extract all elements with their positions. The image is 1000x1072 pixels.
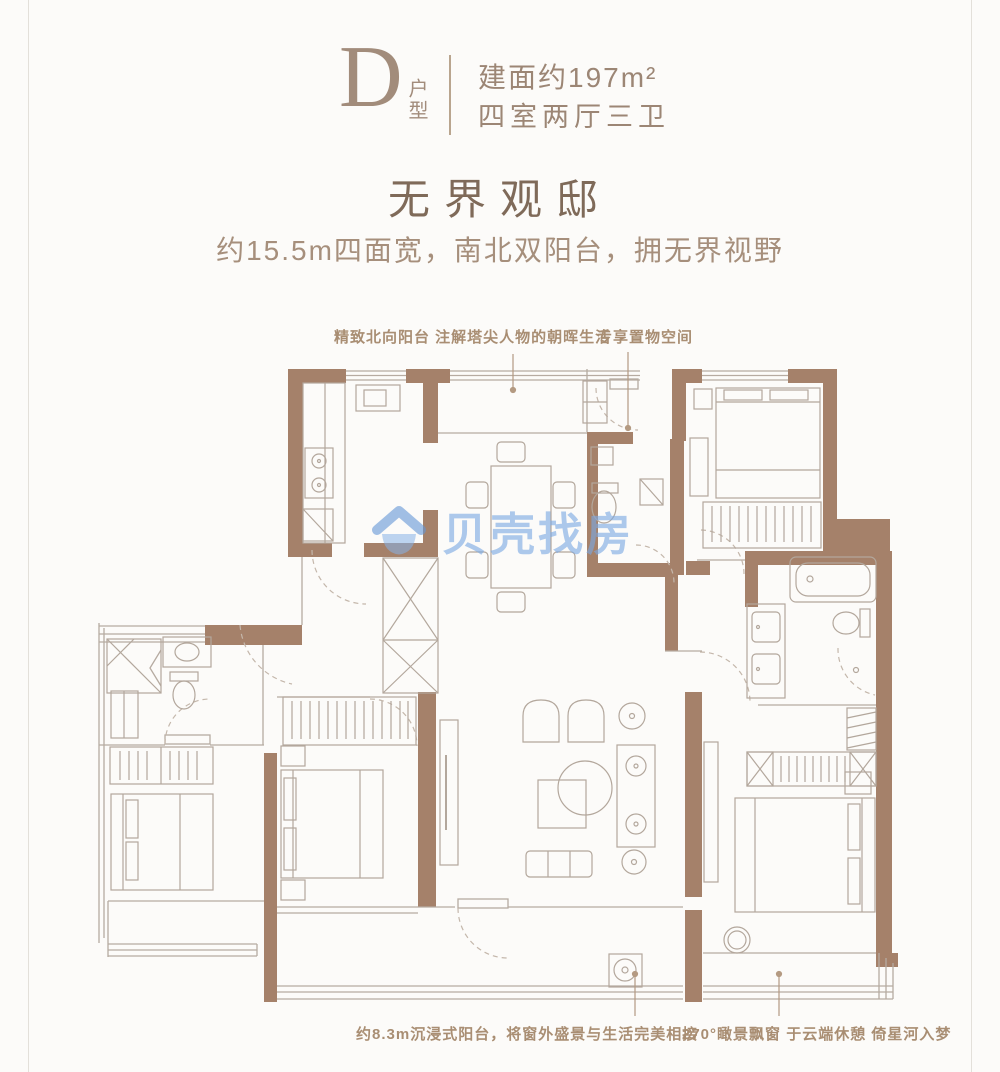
closet-icon <box>747 752 876 786</box>
room-living <box>440 700 655 877</box>
middle-bedroom-door-arc <box>370 699 417 746</box>
plant-icon <box>626 756 646 776</box>
chair-icon <box>497 442 525 462</box>
chair-icon <box>466 482 488 508</box>
armchair-icon <box>568 700 604 742</box>
callout-storage: 专享置物空间 <box>597 326 693 347</box>
nightstand-icon <box>281 746 305 766</box>
room-master-bath <box>747 557 876 750</box>
floorplan-page: D 户型 建面约197m² 四室两厅三卫 无界观邸 约15.5m四面宽，南北双阳… <box>0 0 1000 1072</box>
storage-closet-icon <box>383 558 438 693</box>
bed-icon <box>716 388 820 498</box>
floor-lamp-icon <box>619 703 645 729</box>
nightstand-icon <box>281 880 305 900</box>
room-dining <box>383 442 575 693</box>
rug-icon <box>558 761 612 815</box>
room-kitchen <box>303 383 400 543</box>
room-middle-bedroom <box>281 697 416 900</box>
room-west-bedroom <box>110 747 213 890</box>
kitchen-sink-icon <box>356 385 400 411</box>
coffee-table-icon <box>538 780 586 828</box>
chair-icon <box>466 552 488 578</box>
plant-icon <box>626 814 646 834</box>
shower-door-arc <box>838 648 875 695</box>
entry-door-arc <box>596 388 638 430</box>
leader-lines <box>511 352 782 1016</box>
room-north-bedroom <box>690 388 821 548</box>
chair-icon <box>497 592 525 612</box>
nightstand-icon <box>694 389 712 409</box>
west-bath-door-arc <box>165 699 210 744</box>
callout-south-balcony: 约8.3m沉浸式阳台，将窗外盛景与生活完美相接 <box>356 1023 698 1044</box>
dresser-icon <box>690 438 708 496</box>
wardrobe-icon <box>283 697 416 745</box>
callout-bay-window: 270°瞰景飘窗 于云端休憩 倚星河入梦 <box>682 1023 951 1044</box>
room-middle-bath <box>591 447 663 523</box>
console-icon <box>617 745 655 847</box>
balcony-door-arc <box>458 908 508 958</box>
chair-icon <box>553 482 575 508</box>
walk-in-closet <box>747 752 876 786</box>
sink-icon <box>175 643 199 661</box>
tv-cabinet-icon <box>440 720 458 865</box>
dining-table-icon <box>491 466 551 588</box>
sofa-icon <box>526 851 592 877</box>
toilet-icon <box>173 681 195 709</box>
master-door-arc <box>700 652 750 702</box>
hvac-hatch-icon <box>847 708 876 750</box>
stove-icon <box>305 448 333 498</box>
bed-icon <box>735 798 875 912</box>
kitchen-door-arc <box>312 550 366 604</box>
floor-plan <box>0 0 1000 1072</box>
armchair-icon <box>523 700 559 742</box>
chair-icon <box>553 552 575 578</box>
south-balcony <box>609 954 642 987</box>
dresser-icon <box>704 742 718 882</box>
kitchen-counter-icon <box>303 383 345 543</box>
callout-north-balcony: 精致北向阳台 注解塔尖人物的朝晖生活 <box>334 326 611 347</box>
toilet-icon <box>833 612 859 634</box>
floor-lamp-icon <box>622 850 646 874</box>
